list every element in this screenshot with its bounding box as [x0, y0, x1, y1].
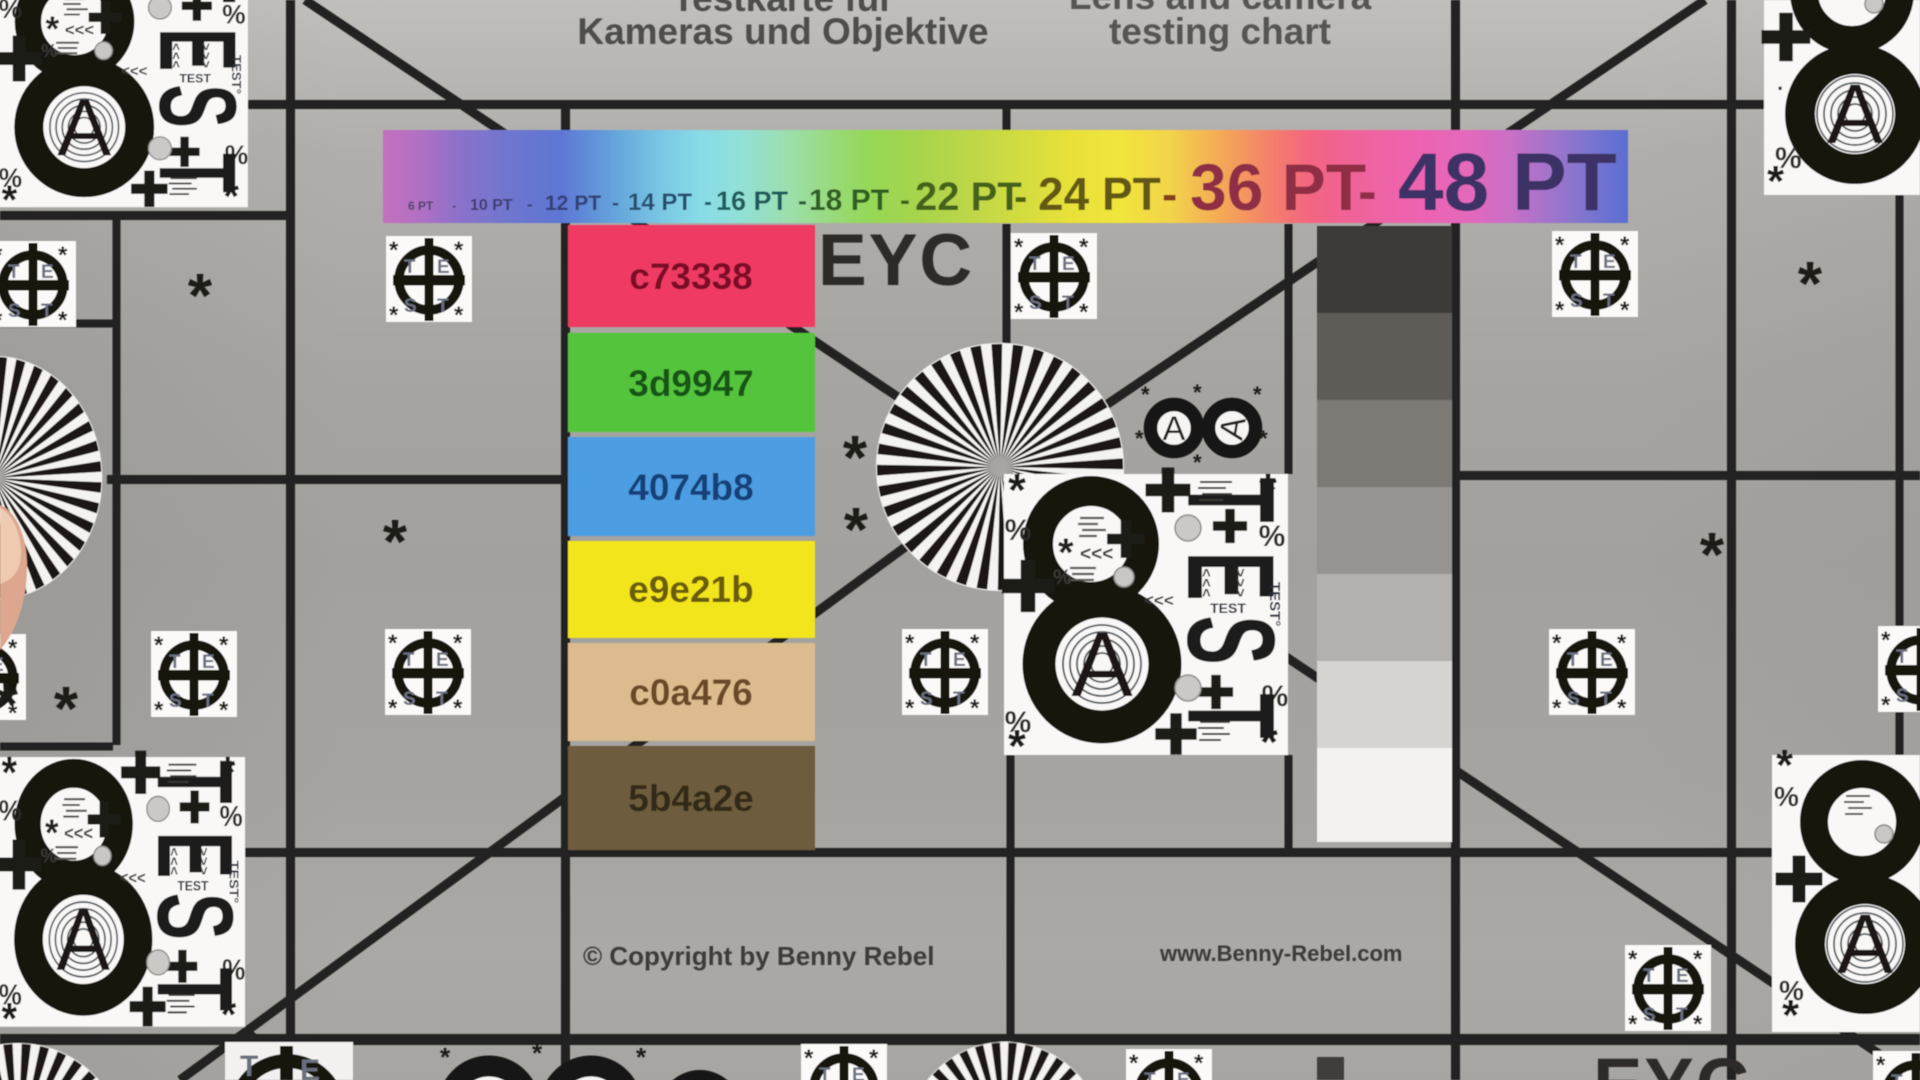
svg-text:*: *: [532, 1038, 543, 1068]
svg-text:*: *: [1700, 521, 1725, 590]
svg-text:-: -: [1358, 159, 1377, 222]
svg-text:*: *: [383, 508, 408, 577]
svg-text:3d9947: 3d9947: [628, 363, 754, 404]
svg-text:-: -: [900, 184, 910, 217]
svg-text:4074b8: 4074b8: [628, 467, 754, 508]
svg-text:22 PT: 22 PT: [915, 175, 1022, 219]
svg-text:*: *: [1798, 250, 1823, 319]
svg-text:c0a476: c0a476: [629, 672, 752, 713]
svg-text:16 PT: 16 PT: [716, 186, 789, 216]
svg-text:-: -: [612, 192, 619, 215]
svg-text:-: -: [1014, 175, 1027, 219]
svg-text:e9e21b: e9e21b: [628, 569, 754, 610]
svg-text:-: -: [1162, 168, 1177, 220]
svg-text:EYC: EYC: [1593, 1043, 1751, 1080]
svg-text:18 PT: 18 PT: [809, 184, 889, 217]
svg-text:c73338: c73338: [629, 256, 752, 297]
svg-text:6 PT: 6 PT: [408, 199, 434, 213]
svg-text:48 PT: 48 PT: [1398, 137, 1617, 228]
svg-text:www.Benny-Rebel.com: www.Benny-Rebel.com: [1159, 941, 1402, 966]
svg-text:14 PT: 14 PT: [628, 189, 692, 216]
svg-text:.: .: [1777, 70, 1783, 95]
svg-text:%: %: [1774, 781, 1799, 812]
svg-text:EYC: EYC: [818, 220, 974, 301]
svg-text:*: *: [1767, 157, 1785, 206]
svg-text:testing chart: testing chart: [1109, 11, 1331, 52]
svg-text:*: *: [843, 424, 868, 493]
svg-text:*: *: [54, 675, 79, 744]
svg-text:*: *: [636, 1042, 647, 1072]
svg-text:-: -: [704, 189, 712, 216]
svg-text:*: *: [440, 1042, 451, 1072]
svg-text:*: *: [1782, 991, 1800, 1040]
svg-text:12 PT: 12 PT: [545, 192, 601, 215]
svg-text:*: *: [844, 496, 869, 565]
svg-text:10 PT: 10 PT: [470, 197, 513, 214]
svg-text:24 PT: 24 PT: [1038, 168, 1161, 220]
svg-text:Kameras und Objektive: Kameras und Objektive: [577, 11, 988, 52]
svg-text:*: *: [188, 262, 213, 331]
svg-text:© Copyright by Benny Rebel: © Copyright by Benny Rebel: [583, 941, 934, 971]
svg-text:T: T: [240, 1050, 258, 1080]
svg-text:-: -: [798, 186, 807, 216]
svg-text:-: -: [527, 195, 533, 214]
svg-text:36 PT: 36 PT: [1190, 150, 1366, 224]
svg-text:5b4a2e: 5b4a2e: [628, 778, 754, 819]
svg-text:*: *: [0, 671, 19, 740]
svg-text:E: E: [300, 1054, 320, 1080]
svg-text:-: -: [452, 198, 456, 213]
